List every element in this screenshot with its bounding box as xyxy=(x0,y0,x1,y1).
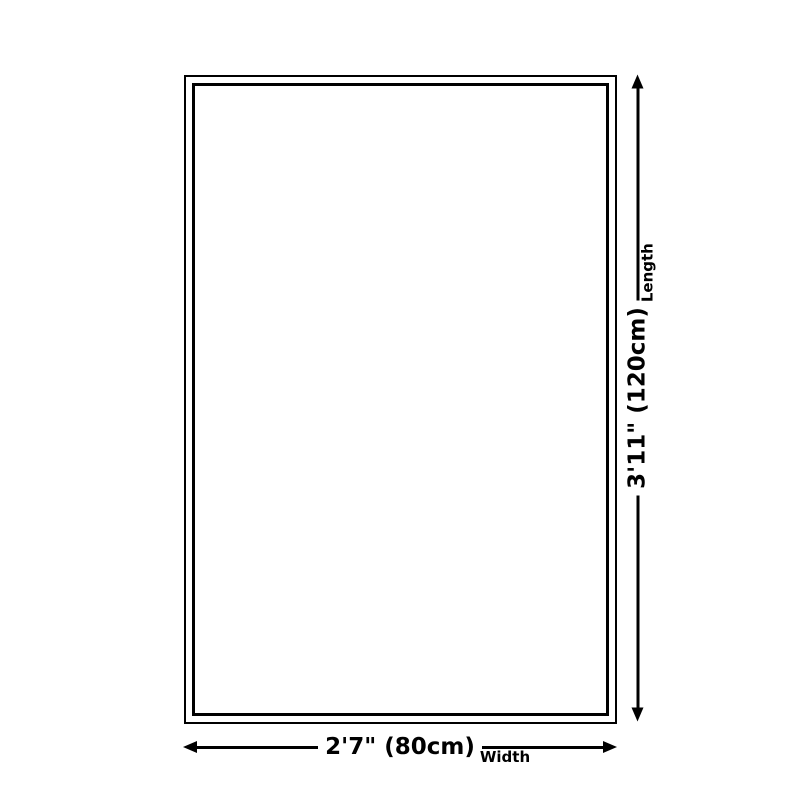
rug-outline xyxy=(184,75,617,724)
arrow-up-icon xyxy=(632,75,644,89)
length-dimension-line-end: Length xyxy=(636,89,639,301)
width-dimension: 2'7" (80cm) Width xyxy=(183,724,617,770)
length-dimension-line-start xyxy=(636,496,639,708)
arrow-down-icon xyxy=(632,708,644,722)
arrow-left-icon xyxy=(183,741,197,753)
width-label: Width xyxy=(480,750,530,765)
rug-inner-border xyxy=(192,83,609,716)
width-dimension-line-end: Width xyxy=(482,746,603,749)
size-diagram: 2'7" (80cm) Width 3'11" (120cm) Length xyxy=(0,0,800,800)
length-value: 3'11" (120cm) xyxy=(626,307,649,489)
length-dimension: 3'11" (120cm) Length xyxy=(615,75,661,722)
width-dimension-line-start xyxy=(197,746,318,749)
width-value: 2'7" (80cm) xyxy=(325,736,475,759)
length-label: Length xyxy=(640,243,655,302)
arrow-right-icon xyxy=(603,741,617,753)
